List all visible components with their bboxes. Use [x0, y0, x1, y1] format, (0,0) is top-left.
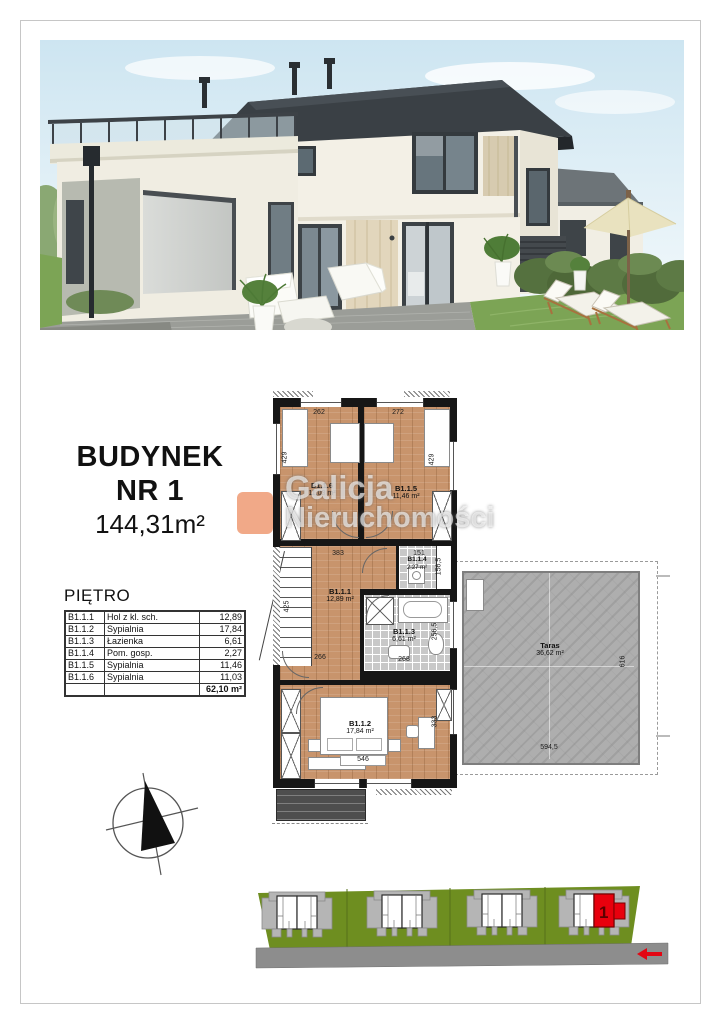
terrace-tie — [656, 575, 670, 577]
dim-label: 383 — [314, 549, 362, 558]
dim-label: 429 — [428, 445, 437, 475]
highlighted-unit-label: 1 — [599, 903, 608, 922]
floor-table-heading: PIĘTRO — [64, 586, 130, 606]
total-area: 62,10 m² — [200, 684, 246, 697]
dim-label: 546 — [340, 755, 386, 766]
floor-table: B1.1.1 Hol z kl. sch. 12,89 B1.1.2 Sypia… — [64, 610, 246, 697]
room-label-b114: B1.1.4 2,27 m² — [395, 555, 439, 572]
pillow — [356, 738, 382, 751]
chair — [406, 725, 419, 738]
window — [300, 398, 342, 407]
house-rendering-svg — [40, 40, 684, 330]
table-row: B1.1.6 Sypialnia 11,03 — [65, 672, 245, 684]
window — [376, 398, 424, 407]
room-name: Sypialnia — [105, 672, 200, 684]
room-name: Łazienka — [105, 636, 200, 648]
dim-label: 272 — [372, 408, 424, 417]
terrace-joint-line — [464, 666, 634, 667]
table-row: B1.1.2 Sypialnia 17,84 — [65, 624, 245, 636]
room-code: B1.1.4 — [65, 648, 105, 660]
floor-plan: Taras 36,62 m² 594,5 616 — [256, 383, 668, 845]
building-title-line1: BUDYNEK — [40, 440, 260, 474]
desk — [364, 423, 394, 463]
highlighted-unit-annex — [614, 903, 625, 919]
dim-label: 425 — [283, 592, 292, 622]
empty-cell — [105, 684, 200, 697]
dim-label: 262 — [294, 408, 344, 417]
terrace-tie — [656, 735, 670, 737]
room-name: Hol z kl. sch. — [105, 611, 200, 624]
room-area: 6,61 — [200, 636, 246, 648]
wall-hatch — [273, 547, 280, 665]
nightstand — [308, 739, 321, 752]
room-code: B1.1.6 — [65, 672, 105, 684]
dim-label: 594,5 — [514, 743, 584, 752]
room-area: 12,89 — [200, 611, 246, 624]
room-label-b112: B1.1.2 17,84 m² — [330, 719, 390, 736]
room-label-b115: B1.1.5 11,46 m² — [376, 484, 436, 501]
room-area: 17,84 — [200, 624, 246, 636]
window — [450, 601, 457, 649]
table-row: B1.1.5 Sypialnia 11,46 — [65, 660, 245, 672]
building-title-area: 144,31m² — [40, 508, 260, 540]
dim-label: 429 — [281, 443, 290, 473]
nightstand — [388, 739, 401, 752]
bathtub — [398, 597, 448, 623]
building-title-line2: NR 1 — [40, 474, 260, 508]
wardrobe — [281, 491, 301, 541]
window — [450, 441, 457, 491]
desk — [330, 423, 360, 463]
pillow — [327, 738, 353, 751]
dim-label: 268 — [382, 655, 426, 664]
room-name: Sypialnia — [105, 624, 200, 636]
site-plan: 1 — [254, 882, 670, 977]
room-code: B1.1.2 — [65, 624, 105, 636]
balcony-outline — [272, 823, 368, 824]
wardrobe — [281, 733, 301, 779]
room-area: 11,03 — [200, 672, 246, 684]
room-label-b113: B1.1.3 6,61 m² — [374, 627, 434, 644]
dim-label: 616 — [619, 647, 628, 677]
site-plan-svg: 1 — [254, 882, 670, 972]
terrace — [462, 571, 640, 765]
room-label-b111: B1.1.1 12,89 m² — [310, 587, 370, 604]
terrace-label: Taras 36,62 m² — [502, 641, 598, 658]
building-title: BUDYNEK NR 1 144,31m² — [40, 440, 260, 540]
room-name: Pom. gosp. — [105, 648, 200, 660]
wall-hatch — [273, 391, 313, 397]
wall-hatch — [404, 391, 450, 397]
room-code: B1.1.1 — [65, 611, 105, 624]
room-code: B1.1.3 — [65, 636, 105, 648]
room-code: B1.1.5 — [65, 660, 105, 672]
room-area: 2,27 — [200, 648, 246, 660]
window — [273, 423, 280, 475]
room-area: 11,46 — [200, 660, 246, 672]
room-name: Sypialnia — [105, 660, 200, 672]
compass-icon — [103, 768, 203, 880]
bathtub-basin — [403, 601, 442, 618]
table-row: B1.1.1 Hol z kl. sch. 12,89 — [65, 611, 245, 624]
north-arrow-icon — [141, 781, 175, 851]
room-label-b116: B1.1.6 11,03 m² — [292, 481, 352, 498]
dim-label: 333 — [431, 707, 440, 737]
terrace-pillar — [466, 579, 484, 611]
wall-hatch — [376, 789, 452, 795]
balcony — [276, 789, 366, 821]
flyer-page: BUDYNEK NR 1 144,31m² Taras 36,62 m² 594… — [0, 0, 724, 1024]
window — [366, 779, 412, 788]
table-total-row: 62,10 m² — [65, 684, 245, 697]
house-rendering — [40, 40, 684, 330]
table-row: B1.1.3 Łazienka 6,61 — [65, 636, 245, 648]
window — [314, 779, 360, 788]
dim-label: 266 — [300, 653, 340, 662]
washer-drum — [412, 571, 421, 580]
table-row: B1.1.4 Pom. gosp. 2,27 — [65, 648, 245, 660]
empty-cell — [65, 684, 105, 697]
